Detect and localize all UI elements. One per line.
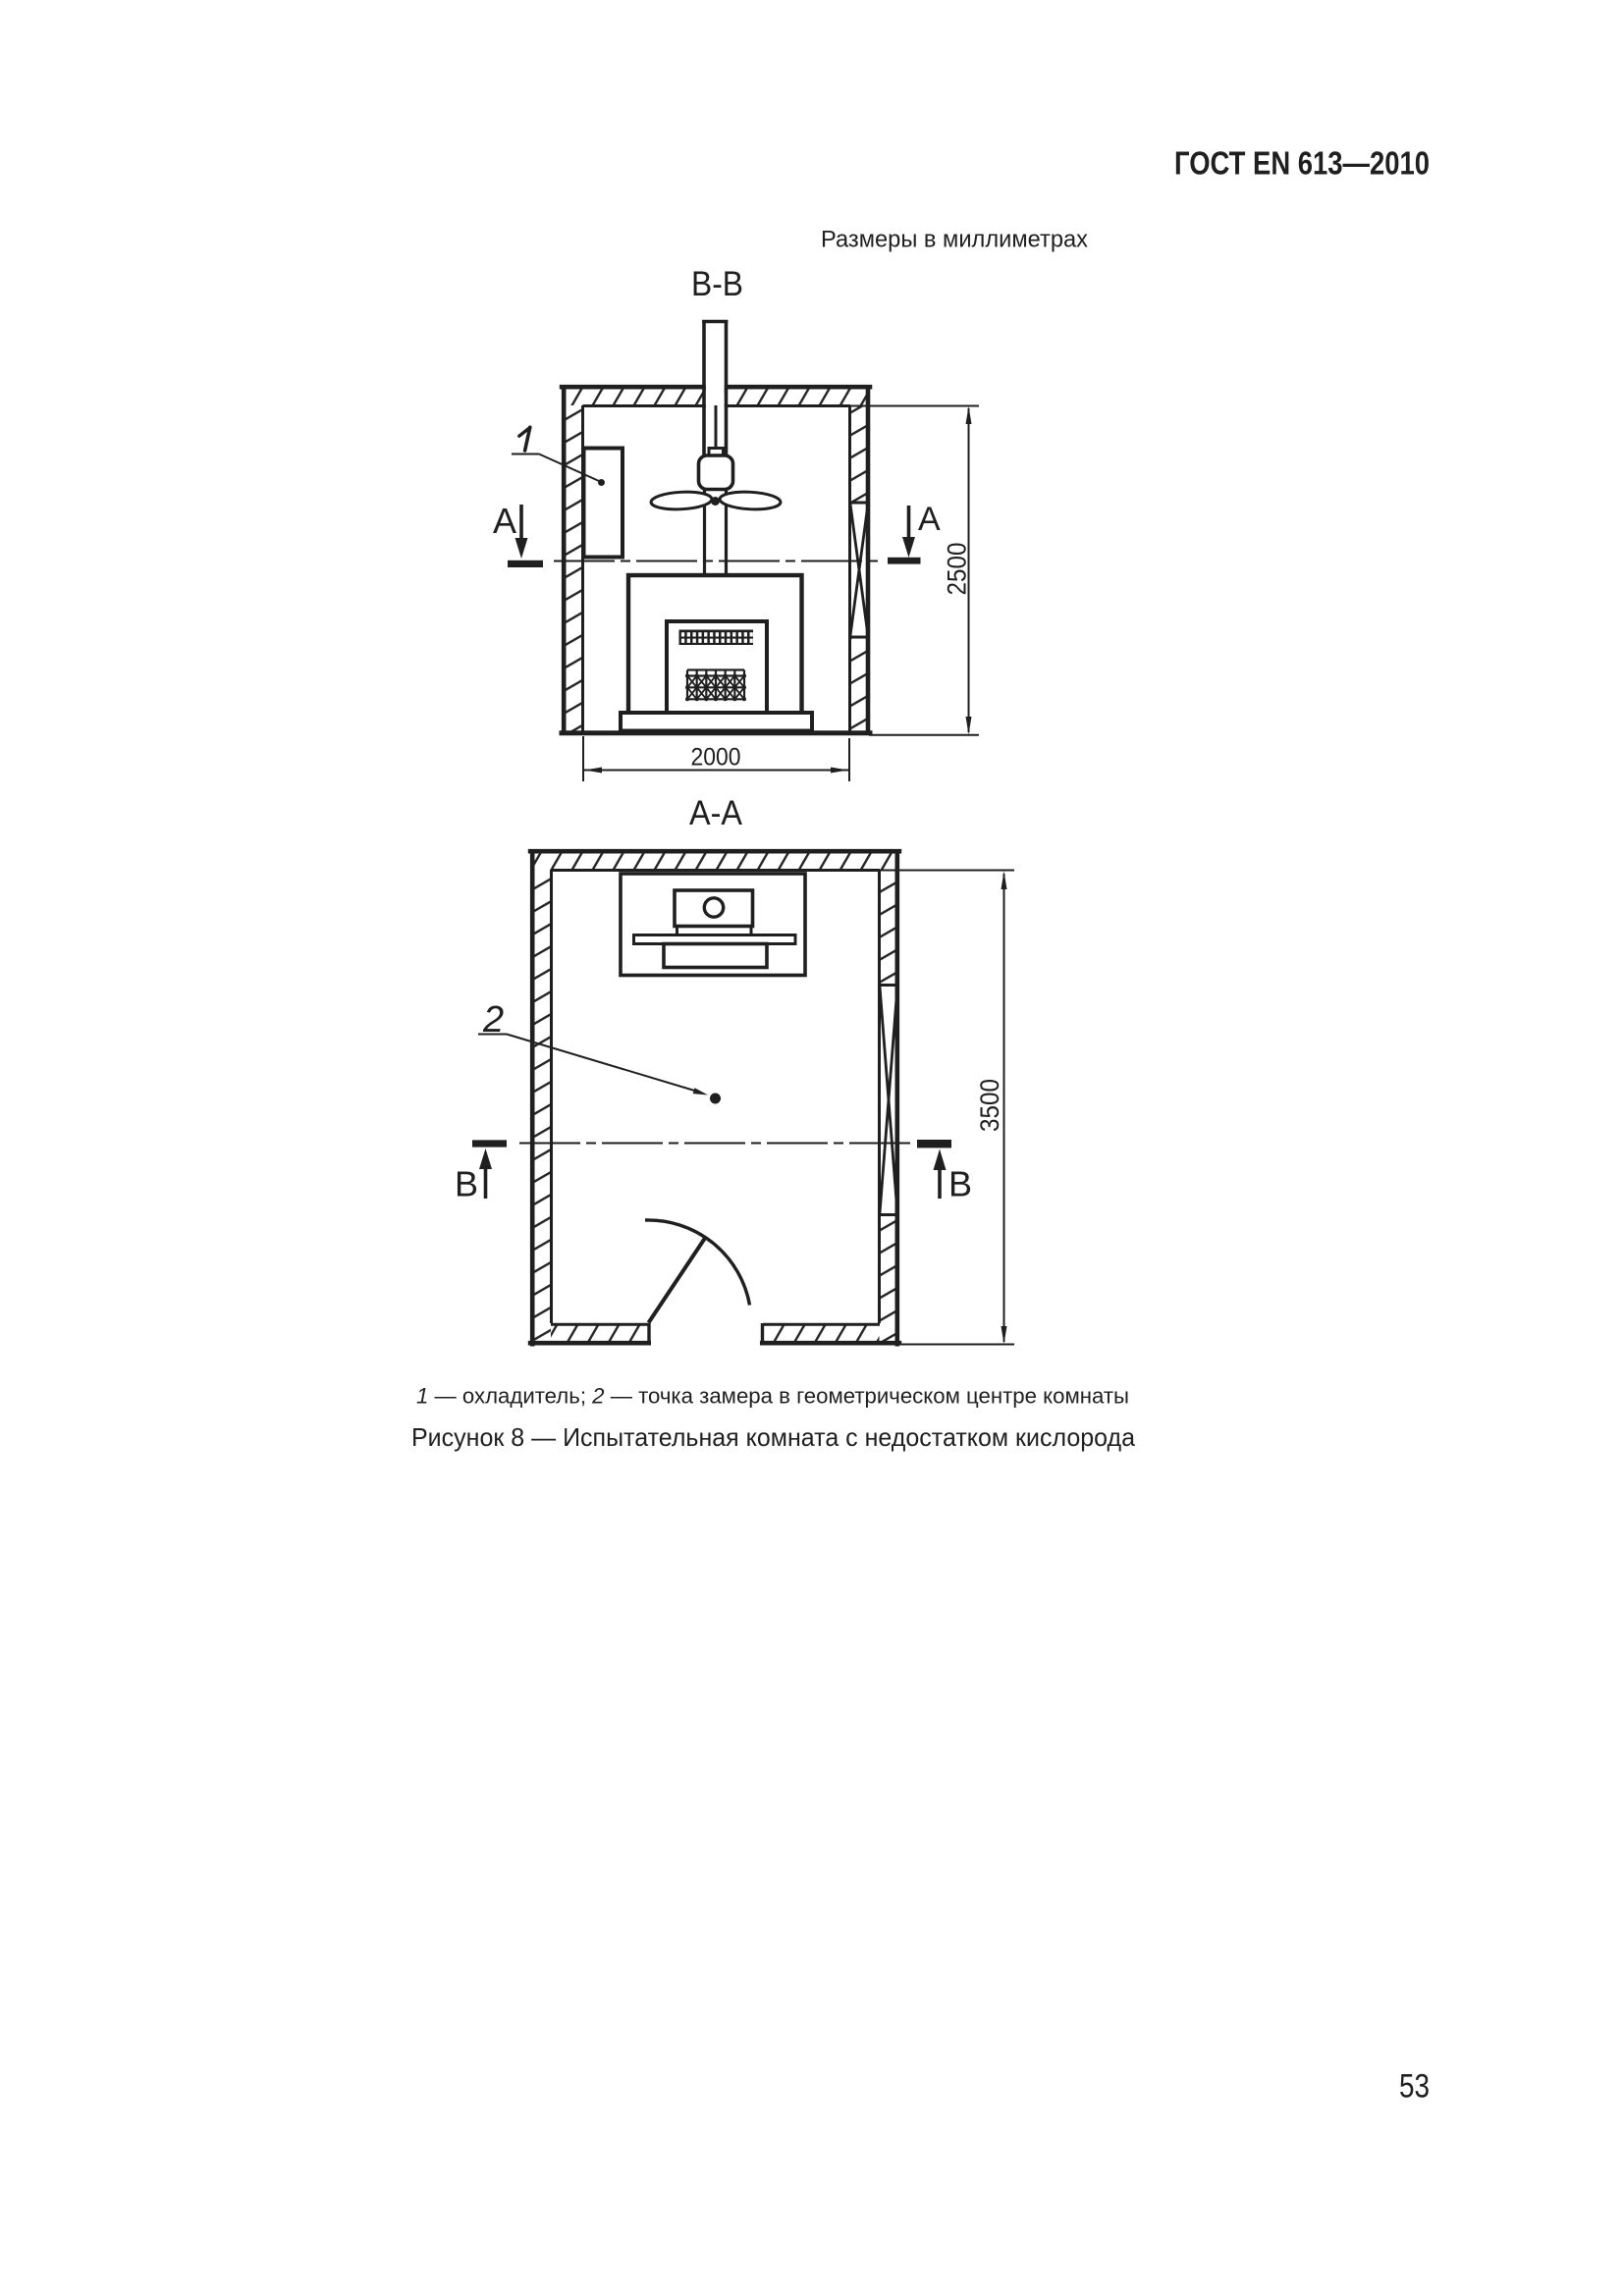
svg-text:В: В — [455, 1164, 478, 1204]
svg-text:А-А: А-А — [689, 794, 743, 832]
svg-text:Рисунок 8 — Испытательная комн: Рисунок 8 — Испытательная комната с недо… — [411, 1422, 1136, 1452]
svg-text:53: 53 — [1399, 2068, 1430, 2106]
svg-text:Размеры в миллиметрах: Размеры в миллиметрах — [821, 227, 1088, 253]
svg-text:3500: 3500 — [975, 1079, 1004, 1132]
svg-text:А: А — [493, 501, 516, 541]
svg-text:2500: 2500 — [943, 543, 972, 596]
svg-text:ГОСТ EN 613—2010: ГОСТ EN 613—2010 — [1174, 145, 1430, 182]
svg-text:2000: 2000 — [691, 744, 741, 772]
svg-text:1 — охладитель; 2 — точка заме: 1 — охладитель; 2 — точка замера в геоме… — [416, 1384, 1129, 1409]
svg-text:2: 2 — [482, 999, 504, 1041]
svg-text:А: А — [918, 501, 941, 538]
svg-text:В: В — [948, 1164, 972, 1204]
svg-text:В-В: В-В — [691, 265, 743, 303]
